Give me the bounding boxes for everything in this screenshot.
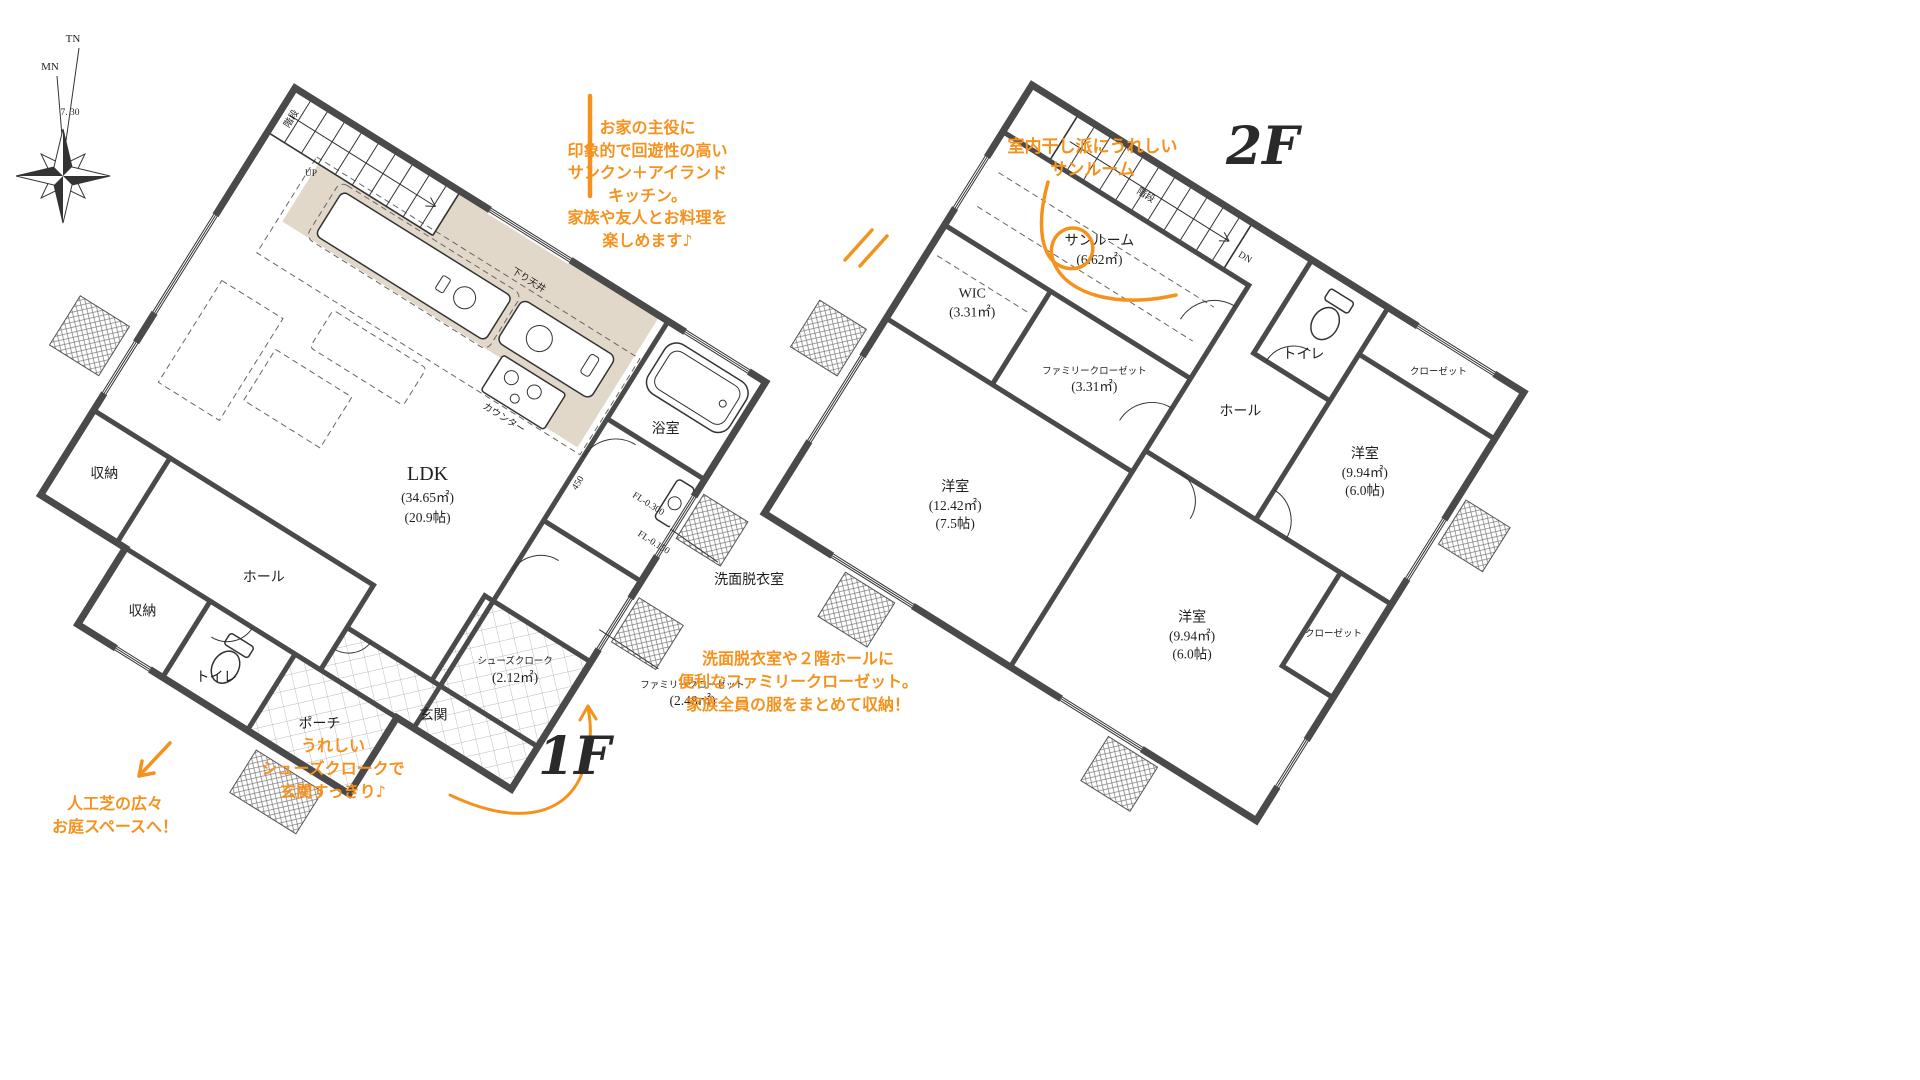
bedroom-right-m2: (9.94㎡) xyxy=(1342,465,1388,480)
closet-label-top: クローゼット xyxy=(1410,365,1467,377)
wic-area: (3.31㎡) xyxy=(949,305,995,320)
kitchen-note-line: 印象的で回遊性の高い xyxy=(555,140,740,163)
closet-note-line: 洗面脱衣室や２階ホールに xyxy=(668,647,928,670)
porch-label: ポーチ xyxy=(298,716,340,732)
shoes-note-line: 玄関すっきり♪ xyxy=(238,780,428,803)
closet-note-line: 家族全員の服をまとめて収納！ xyxy=(668,693,928,716)
kitchen-note-line: 楽しめます♪ xyxy=(555,230,740,253)
closet-note: 洗面脱衣室や２階ホールに 便利なファミリークローゼット。 家族全員の服をまとめて… xyxy=(668,647,928,716)
bedroom-bottom-label: 洋室 xyxy=(1178,608,1206,625)
bedroom-bottom-jo: (6.0帖) xyxy=(1172,646,1211,661)
floorplan-page: TN MN 7. 30 xyxy=(0,0,1920,1080)
storage-label-2: 収納 xyxy=(128,603,156,619)
bedroom-left-label: 洋室 xyxy=(941,478,969,495)
shoes-closet-label: シューズクローク xyxy=(477,655,553,667)
ldk-area-jo: (20.9帖) xyxy=(404,510,450,525)
toilet-label-1f: トイレ xyxy=(196,671,238,686)
storage-label-1: 収納 xyxy=(90,466,118,482)
floorplan-canvas: TN MN 7. 30 xyxy=(0,0,1920,1080)
closet-note-line: 便利なファミリークローゼット。 xyxy=(668,670,928,693)
sunroom-note-line: 室内干し派にうれしい xyxy=(985,136,1200,159)
family-closet-label-2f: ファミリークローゼット xyxy=(1042,365,1147,377)
ldk-label: LDK xyxy=(407,463,449,485)
bedroom-left-jo: (7.5帖) xyxy=(936,516,975,531)
kitchen-note-line: キッチン。 xyxy=(555,185,740,208)
shoes-note: うれしい シューズクロークで 玄関すっきり♪ xyxy=(238,734,428,803)
floor2-title: 2F xyxy=(1226,116,1299,177)
compass-mn-label: MN xyxy=(41,61,59,73)
kitchen-note: お家の主役に 印象的で回遊性の高い サンクン＋アイランド キッチン。 家族や友人… xyxy=(555,117,740,252)
bath-label: 浴室 xyxy=(652,420,680,437)
ldk-area-m2: (34.65㎡) xyxy=(401,490,454,505)
kitchen-note-slashes xyxy=(845,230,887,266)
shoes-closet-area: (2.12㎡) xyxy=(492,670,538,685)
garden-note-line: お庭スペースへ！ xyxy=(35,815,195,838)
garden-note: 人工芝の広々 お庭スペースへ！ xyxy=(35,792,195,838)
hall-label-2f: ホール xyxy=(1219,405,1261,420)
bedroom-right-jo: (6.0帖) xyxy=(1345,483,1384,498)
sunroom-label: サンルーム xyxy=(1065,234,1135,249)
sunroom-note-line: サンルーム xyxy=(985,159,1200,182)
hall-label-1f: ホール xyxy=(243,570,285,585)
shoes-note-line: うれしい xyxy=(238,734,428,757)
family-closet-area-2f: (3.31㎡) xyxy=(1071,379,1117,394)
garden-arrow xyxy=(139,743,170,776)
kitchen-note-line: お家の主役に xyxy=(555,117,740,140)
floor1-plan: 階段 UP 下り天井 カウンター 450 FL-0.300 FL-0.150 L… xyxy=(0,48,898,1000)
compass-declination-label: 7. 30 xyxy=(61,108,80,118)
wic-label: WIC xyxy=(959,287,986,302)
garden-note-line: 人工芝の広々 xyxy=(35,792,195,815)
sunroom-note: 室内干し派にうれしい サンルーム xyxy=(985,136,1200,182)
compass-rose: TN MN 7. 30 xyxy=(16,33,110,223)
bedroom-left-m2: (12.42㎡) xyxy=(929,498,982,513)
washroom-label: 洗面脱衣室 xyxy=(714,571,784,588)
toilet-label-2f: トイレ xyxy=(1282,347,1324,362)
floor1-title: 1F xyxy=(538,726,611,787)
ldk-label-group: LDK (34.65㎡) (20.9帖) xyxy=(401,463,454,525)
closet-label-bottom: クローゼット xyxy=(1305,628,1362,640)
bedroom-bottom-m2: (9.94㎡) xyxy=(1169,628,1215,643)
kitchen-note-line: サンクン＋アイランド xyxy=(555,162,740,185)
compass-tn-label: TN xyxy=(66,33,81,45)
bedroom-right-label: 洋室 xyxy=(1351,445,1379,462)
kitchen-note-line: 家族や友人とお料理を xyxy=(555,207,740,230)
up-label: UP xyxy=(305,169,317,179)
entrance-label: 玄関 xyxy=(419,706,447,723)
compass-star-icon xyxy=(16,129,110,223)
shoes-note-line: シューズクロークで xyxy=(238,757,428,780)
